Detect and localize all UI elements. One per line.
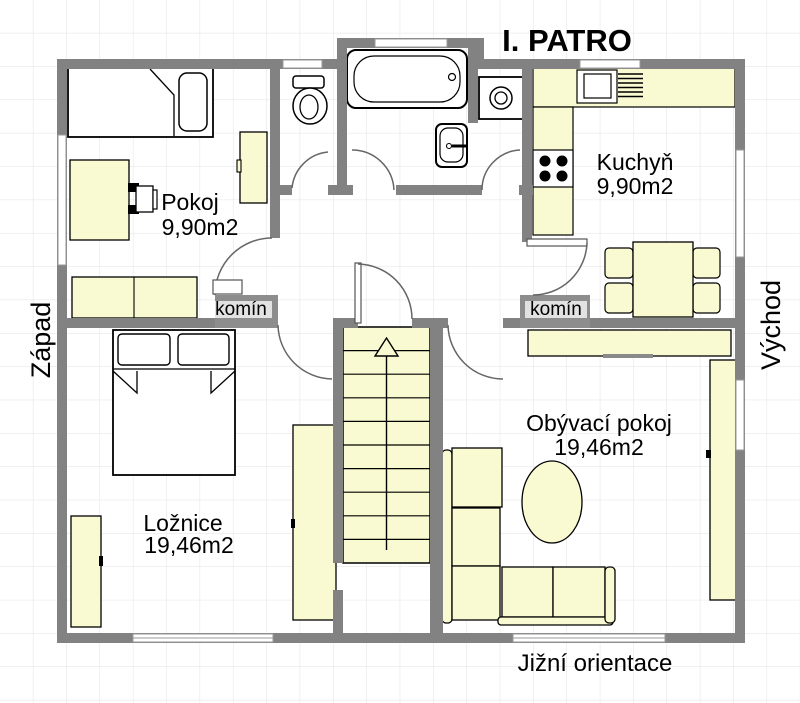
double-bed-pillow-left [118,334,170,365]
dining-chair-left-2 [605,283,633,313]
wall-wc-bathroom [337,38,347,195]
window-living-east [736,380,744,450]
dining-chair-left-1 [605,248,633,278]
window-pokoj-west [58,135,66,265]
sofa-cushion-2 [452,508,500,566]
window-bathroom-north [375,39,447,47]
bedroom-tall-cabinet [293,425,336,620]
sofa-cushion-1 [452,448,502,507]
wall-stair-left-upper [333,328,343,563]
orientation-east: Východ [756,280,786,370]
sofa-cushion-3 [452,566,500,620]
room-label-pokoj: Pokoj [161,189,219,215]
door-leaf-kitchen [527,239,587,246]
bathtub-drain [449,74,456,81]
living-tall-cabinet [710,360,737,600]
sofa-cushion-5 [553,567,605,617]
wall-stair-right [430,328,443,633]
room-area-loznice: 19,46m2 [144,532,234,558]
staircase [343,327,430,563]
double-bed-pillow-right [178,334,229,365]
toilet-tank [293,76,324,88]
wall-middle-left [57,318,218,328]
wall-bathroom-niche [468,38,478,123]
desk-chair-seat [136,186,153,212]
wall-middle-stair-1 [333,318,358,328]
wall-kitchen-left-upper [522,59,532,242]
wall-middle-stair-2 [412,318,448,328]
room-area-kuchyn: 9,90m2 [597,173,674,199]
dining-chair-right-2 [693,283,720,313]
room-label-kuchyn: Kuchyň [597,149,674,175]
wall-middle-right-2 [590,318,745,328]
orientation-west: Západ [26,302,56,379]
desk [70,160,129,240]
living-tall-cabinet-handle [706,450,711,458]
wall-middle-right-1 [503,318,520,328]
wall-hall-top-4 [519,185,533,195]
pokoj-cabinet [240,132,267,203]
room-area-obyvaci: 19,46m2 [554,434,644,460]
bath-sink-drain [447,144,452,149]
toilet-bowl-inner [300,95,318,119]
washing-machine-door-inner [495,92,507,104]
bedroom-wardrobe [71,516,101,627]
wall-stair-left-lower [333,590,343,633]
wall-hall-top-3 [396,185,482,195]
living-sideboard-handle [603,354,653,358]
page-title: I. PATRO [502,23,632,58]
kitchen-sink-basin [584,74,611,98]
living-sideboard [528,330,731,356]
door-leaf-stairs [355,263,361,323]
bedroom-wardrobe-handle [99,556,103,566]
orientation-south: Jižní orientace [518,650,673,677]
wall-hall-top-1 [270,185,292,195]
coffee-table [522,461,582,543]
single-bed-pillow [179,73,207,131]
chimney-label-right: komín [530,299,582,320]
room-area-pokoj: 9,90m2 [162,214,239,240]
desk-chair-rail [153,190,157,209]
pokoj-cabinet-handle [237,160,241,172]
room-label-obyvaci: Obývací pokoj [526,410,672,436]
bathtub-inner [354,56,460,102]
bedroom-tall-cabinet-handle [291,519,295,528]
kitchen-cooktop [533,150,573,187]
chimney-label-left: komín [215,299,267,320]
sofa-front-strip [498,617,613,625]
window-wc-north [283,60,322,68]
sofa-armrest [605,567,615,623]
window-kitchen-north [580,60,640,68]
sofa-backrest [442,450,452,623]
floor-plan: I. PATRO Pokoj 9,90m2 Kuchyň 9,90m2 Ložn… [0,0,800,703]
door-leaf-pokoj [213,280,242,294]
dining-chair-right-1 [693,248,720,278]
wall-pokoj-right [270,59,280,238]
window-kitchen-east [736,150,744,257]
sofa-cushion-4 [502,567,553,617]
dining-table [633,242,693,317]
wall-hall-top-2 [328,185,353,195]
room-wc [293,76,327,124]
